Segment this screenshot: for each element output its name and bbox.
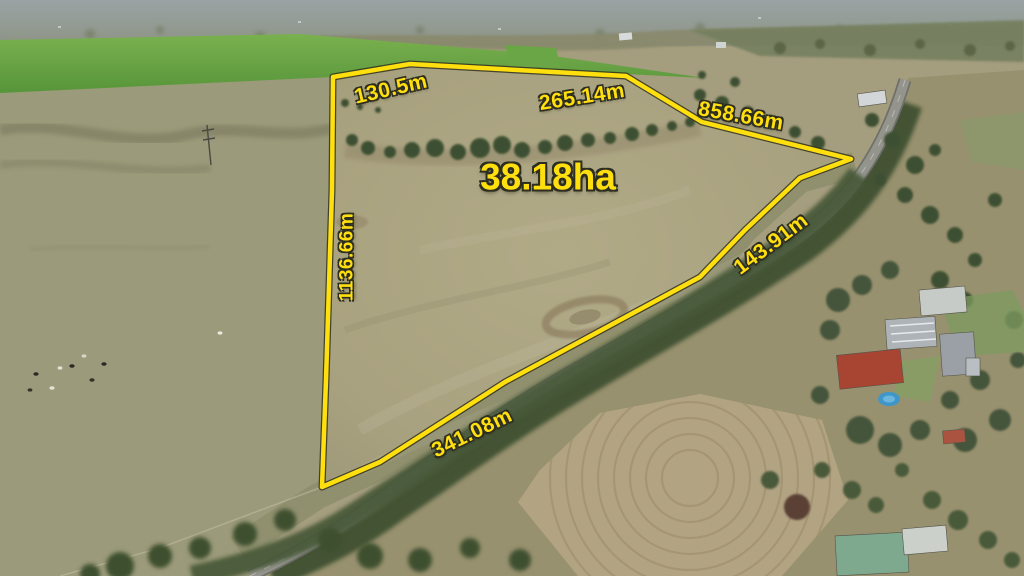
measurement-west: 1136.66m — [338, 213, 357, 302]
aerial-photo: 130.5m 265.14m 858.66m 143.91m 341.08m 1… — [0, 0, 1024, 576]
container — [966, 358, 980, 376]
green-roof-shed — [835, 532, 909, 576]
landscape-graphic — [0, 0, 1024, 576]
area-label: 38.18ha — [480, 159, 616, 196]
caravan — [902, 525, 948, 555]
greenhouse — [919, 286, 967, 316]
red-roof-house — [836, 349, 903, 390]
red-roof-small — [943, 429, 966, 444]
